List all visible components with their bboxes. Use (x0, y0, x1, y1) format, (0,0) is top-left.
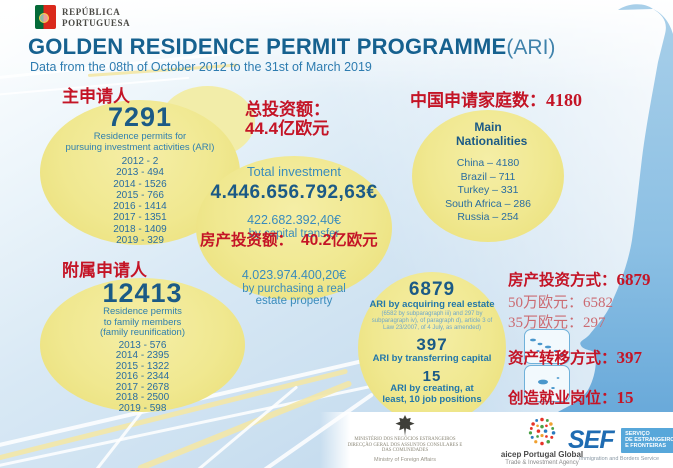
family-applicants-desc-3: (family reunification) (40, 328, 245, 339)
zh-summary-capital-label: 资产转移方式： (508, 350, 617, 367)
nationality-row: Turkey – 331 (412, 184, 564, 198)
aicep-dots-icon (525, 416, 559, 448)
total-investment-label-zh: 总投资额： 44.4亿欧元 (245, 100, 365, 138)
ari-jobs-label: ARI by creating, at least, 10 job positi… (358, 384, 506, 405)
zh-realestate-value: 40.2亿欧元 (301, 232, 378, 249)
zh-realestate-label: 房产投资额： (200, 232, 293, 249)
ari-jobs-count: 15 (358, 369, 506, 384)
family-applicants-desc-1: Residence permits (40, 307, 245, 318)
government-emblem-text: REPÚBLICA PORTUGUESA (62, 7, 130, 28)
subtitle: Data from the 08th of October 2012 to th… (30, 60, 372, 74)
ministry-en: Ministry of Foreign Affairs (330, 457, 480, 463)
china-families-header-zh: 中国申请家庭数：4180 (410, 86, 582, 111)
title-suffix: (ARI) (506, 36, 555, 59)
zh-china-value: 4180 (546, 90, 582, 110)
main-applicants-total: 7291 (40, 103, 240, 131)
nationalities-content: Main Nationalities China – 4180 Brazil –… (412, 110, 564, 242)
ari-capital-label: ARI by transferring capital (358, 353, 506, 364)
title-main: GOLDEN RESIDENCE PERMIT PROGRAMME (28, 34, 506, 59)
ari-realestate-label: ARI by acquiring real estate (358, 299, 506, 310)
total-investment-value: 4.446.656.792,63€ (196, 182, 392, 204)
nationality-row: Russia – 254 (412, 211, 564, 225)
real-estate-investment-zh: 房产投资额：40.2亿欧元 (200, 228, 378, 250)
ari-types-content: 6879 ARI by acquiring real estate (6582 … (358, 272, 506, 424)
capital-transfer-value: 422.682.392,40€ (196, 213, 392, 227)
zh-total-value: 44.4亿欧元 (245, 119, 365, 138)
sef-line3: E FRONTEIRAS (625, 443, 673, 449)
emblem-line1: REPÚBLICA (62, 7, 130, 18)
main-applicants-desc-1: Residence permits for (40, 131, 240, 142)
zh-summary-350k: 35万欧元：297 (508, 311, 606, 332)
zh-summary-jobs-value: 15 (617, 388, 634, 407)
nationalities-title: Main Nationalities (412, 120, 564, 148)
ari-realestate-count: 6879 (358, 280, 506, 299)
family-year-row: 2019 - 598 (40, 404, 245, 415)
zh-summary-realestate-label: 房产投资方式： (508, 272, 617, 289)
sef-logo: SEF SERVIÇO DE ESTRANGEIROS E FRONTEIRAS… (568, 428, 670, 462)
ministry-line3: DAS COMUNIDADES (330, 448, 480, 454)
main-applicants-label-zh: 主申请人 (62, 82, 130, 107)
portugal-flag-icon (35, 5, 56, 29)
zh-summary-realestate-value: 6879 (617, 270, 651, 289)
zh-summary-500k: 50万欧元：6582 (508, 291, 613, 312)
zh-summary-500k-label: 50万欧元： (508, 295, 583, 311)
ari-capital-count: 397 (358, 336, 506, 353)
zh-summary-jobs-label: 创造就业岗位： (508, 390, 617, 407)
nationality-row: China – 4180 (412, 157, 564, 171)
zh-summary-500k-value: 6582 (583, 295, 613, 311)
main-applicants-desc-2: pursuing investment activities (ARI) (40, 142, 240, 153)
zh-total-label: 总投资额： (245, 100, 365, 119)
sef-wordmark: SEF (568, 428, 614, 452)
zh-summary-realestate: 房产投资方式：6879 (508, 268, 651, 290)
nationality-row: South Africa – 286 (412, 198, 564, 212)
page-title: GOLDEN RESIDENCE PERMIT PROGRAMME(ARI) (28, 34, 555, 60)
zh-summary-350k-value: 297 (583, 315, 606, 331)
zh-summary-jobs: 创造就业岗位：15 (508, 386, 634, 408)
sef-fullname-box: SERVIÇO DE ESTRANGEIROS E FRONTEIRAS (621, 428, 673, 453)
infographic-slide: REPÚBLICA PORTUGUESA GOLDEN RESIDENCE PE… (0, 0, 673, 468)
emblem-line2: PORTUGUESA (62, 18, 130, 29)
sef-sub: Immigration and Borders Service (568, 456, 670, 462)
ari-realestate-note: (6582 by subparagraph iii) and 297 by su… (358, 310, 506, 331)
zh-summary-capital-value: 397 (617, 348, 643, 367)
nationality-row: Brazil – 711 (412, 171, 564, 185)
zh-summary-350k-label: 35万欧元： (508, 315, 583, 331)
family-applicants-label-zh: 附属申请人 (62, 256, 147, 281)
total-investment-label: Total investment (196, 164, 392, 179)
zh-summary-capital: 资产转移方式：397 (508, 346, 642, 368)
zh-china-label: 中国申请家庭数： (410, 91, 546, 110)
